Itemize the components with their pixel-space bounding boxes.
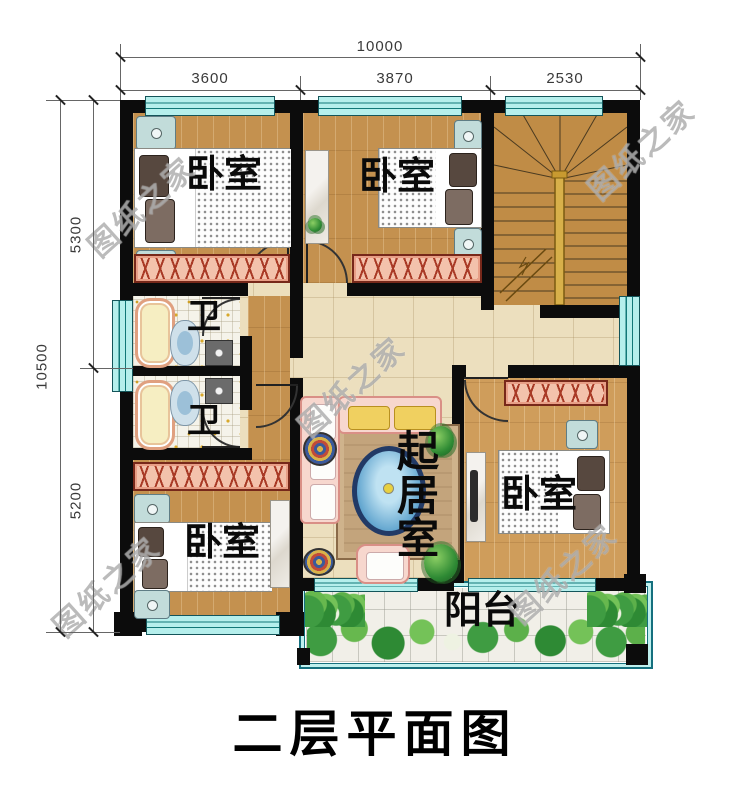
balcony-plants-right — [587, 587, 647, 627]
nightstand — [566, 420, 598, 449]
round-mat — [303, 548, 335, 576]
toilet — [205, 378, 233, 404]
staircase — [494, 113, 627, 305]
dimension-line-left-total — [60, 100, 61, 632]
wardrobe — [352, 254, 482, 283]
wardrobe — [133, 462, 290, 491]
dimension-line-top-segments — [120, 90, 640, 91]
nightstand — [134, 494, 170, 524]
floor-plan-canvas: 卧室 卧室 卫 卫 起居室 卧室 卧室 阳台 图纸之家 图纸之家 图纸之家 图纸… — [0, 0, 750, 785]
balcony-plants-left — [305, 587, 365, 627]
dim-left-seg-1: 5300 — [68, 185, 85, 285]
dim-top-seg-3: 2530 — [515, 70, 615, 87]
dim-top-seg-2: 3870 — [345, 70, 445, 87]
window — [619, 296, 640, 366]
page-title: 二层平面图 — [0, 694, 750, 766]
dim-top-seg-1: 3600 — [160, 70, 260, 87]
wall — [133, 283, 248, 296]
window — [505, 96, 603, 116]
corner-post — [626, 644, 648, 665]
wall — [290, 578, 316, 591]
extension-line — [80, 368, 133, 369]
room-label-bath-bottom: 卫 — [184, 404, 224, 440]
corner-post — [624, 574, 646, 593]
room-label-bedroom-top-mid: 卧室 — [352, 158, 442, 198]
wardrobe — [134, 254, 290, 283]
corner-post — [276, 612, 304, 636]
dim-left-seg-2: 5200 — [68, 451, 85, 551]
wall — [481, 100, 494, 310]
dimension-line-top-total — [120, 57, 640, 58]
window — [112, 300, 133, 392]
wall — [290, 100, 303, 296]
bathtub — [135, 380, 175, 450]
wall — [508, 365, 627, 378]
extension-line — [46, 100, 120, 101]
tv — [470, 470, 478, 522]
dim-top-total: 10000 — [330, 38, 430, 55]
door-leaf — [202, 446, 240, 448]
window — [145, 96, 275, 116]
vestibule-floor — [248, 296, 290, 460]
dim-left-total: 10500 — [34, 317, 51, 417]
extension-line — [46, 632, 120, 633]
wall — [540, 305, 627, 318]
wall — [290, 296, 303, 358]
door-leaf — [306, 240, 308, 283]
staircase-drawing — [494, 113, 627, 305]
wall — [347, 283, 481, 296]
door-leaf — [256, 384, 298, 386]
nightstand — [134, 590, 170, 619]
plant — [308, 218, 322, 232]
door-leaf — [464, 377, 508, 379]
window — [318, 96, 462, 116]
toilet — [205, 340, 233, 366]
room-label-bedroom-bottom-left: 卧室 — [176, 524, 268, 564]
wardrobe — [504, 380, 608, 406]
room-label-living: 起居室 — [396, 430, 440, 561]
room-label-bedroom-bottom-right: 卧室 — [492, 476, 586, 516]
dresser — [270, 500, 290, 588]
nightstand — [136, 116, 176, 150]
room-label-bath-top: 卫 — [184, 300, 224, 336]
corner-post — [297, 648, 310, 665]
bathtub — [135, 298, 175, 368]
